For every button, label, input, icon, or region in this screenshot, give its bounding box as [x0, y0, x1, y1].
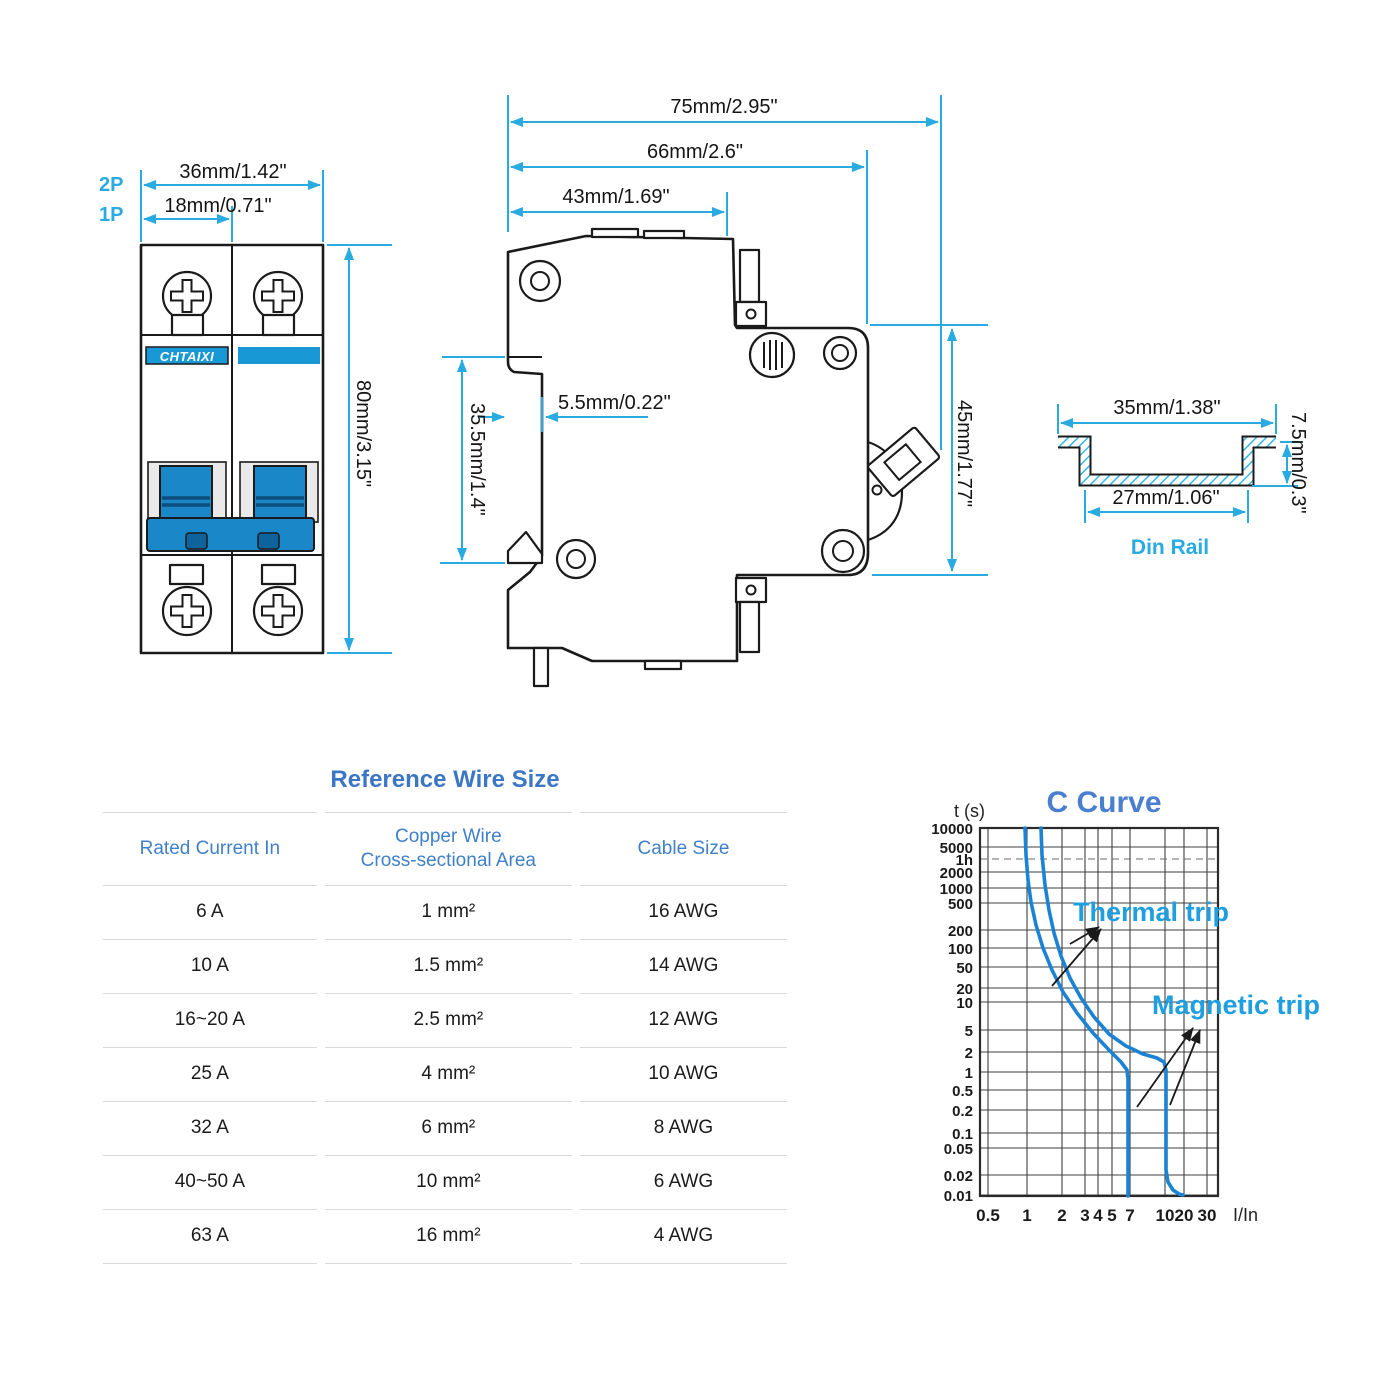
x-tick-label: 20	[1175, 1206, 1194, 1225]
y-tick-label: 10	[956, 995, 973, 1012]
x-tick-label: 4	[1093, 1206, 1103, 1225]
x-tick-label: 2	[1057, 1206, 1066, 1225]
dim-recess-height: 35.5mm/1.4"	[466, 403, 488, 516]
y-tick-label: 200	[948, 923, 973, 940]
table-row: 63 A16 mm²4 AWG	[103, 1209, 787, 1264]
x-tick-label: 30	[1198, 1206, 1217, 1225]
y-tick-label: 2000	[940, 865, 973, 882]
x-tick-label: 3	[1080, 1206, 1089, 1225]
screw-phillips-icon	[254, 272, 302, 320]
dim-width-2p: 36mm/1.42"	[179, 161, 286, 183]
leader-arrow	[1170, 1030, 1200, 1105]
din-clip	[508, 532, 542, 563]
table-header-row: Rated Current In Copper Wire Cross-secti…	[103, 812, 787, 886]
technical-drawings: CHTAIXI	[0, 0, 1400, 760]
y-tick-label: 50	[956, 960, 973, 977]
x-tick-label: 0.5	[976, 1206, 1000, 1225]
y-tick-label: 5	[965, 1023, 973, 1040]
table-row: 25 A4 mm²10 AWG	[103, 1047, 787, 1101]
x-tick-label: 10	[1156, 1206, 1175, 1225]
trip-curve-chart: 0.51234571020301000050001h20001000500200…	[880, 775, 1390, 1255]
y-tick-label: 0.05	[944, 1141, 973, 1158]
annotation-magnetic-trip: Magnetic trip	[1152, 990, 1320, 1020]
rivet-icon	[822, 530, 864, 572]
dim-recess-depth: 5.5mm/0.22"	[558, 392, 671, 414]
pole-label-2p: 2P	[99, 174, 123, 196]
y-tick-label: 0.02	[944, 1168, 973, 1185]
col-header-cable-size: Cable Size	[580, 812, 787, 886]
toggle-tie-bar	[147, 518, 314, 551]
trip-curve	[1025, 828, 1128, 1196]
dim-rail-inner: 27mm/1.06"	[1112, 487, 1219, 509]
brand-strip-blank	[238, 347, 320, 364]
screw-phillips-icon	[254, 587, 302, 635]
y-tick-label: 1	[965, 1065, 973, 1082]
y-tick-label: 0.2	[952, 1103, 973, 1120]
dim-height: 80mm/3.15"	[352, 380, 374, 487]
annotation-thermal-trip: Thermal trip	[1073, 897, 1229, 927]
col-header-cross-section: Copper Wire Cross-sectional Area	[325, 812, 572, 886]
x-axis-label: I/In	[1233, 1205, 1258, 1225]
chart-plot-area: 0.51234571020301000050001h20001000500200…	[931, 821, 1218, 1225]
table-row: 6 A1 mm²16 AWG	[103, 886, 787, 939]
wire-size-table: Reference Wire Size Rated Current In Cop…	[95, 766, 795, 1264]
table-row: 16~20 A2.5 mm²12 AWG	[103, 993, 787, 1047]
y-tick-label: 0.5	[952, 1083, 973, 1100]
rivet-icon	[520, 261, 560, 301]
dim-rail-depth: 7.5mm/0.3"	[1287, 412, 1309, 514]
y-tick-label: 500	[948, 896, 973, 913]
dim-rail-outer: 35mm/1.38"	[1113, 397, 1220, 419]
dim-body-height: 45mm/1.77"	[953, 400, 975, 507]
table-row: 10 A1.5 mm²14 AWG	[103, 939, 787, 993]
y-tick-label: 10000	[931, 821, 973, 838]
breaker-side-view: 75mm/2.95" 66mm/2.6" 43mm/1.69" 5.5mm/0.…	[440, 95, 988, 686]
table-title: Reference Wire Size	[95, 766, 795, 794]
rivet-icon	[557, 540, 595, 578]
slotted-screw-icon	[750, 333, 794, 377]
spec-sheet: CHTAIXI	[0, 0, 1400, 1400]
dim-total-width: 75mm/2.95"	[670, 96, 777, 118]
brand-logo: CHTAIXI	[160, 349, 215, 364]
col-header-rated-current: Rated Current In	[103, 812, 317, 886]
din-rail-label: Din Rail	[1131, 536, 1209, 559]
y-tick-label: 100	[948, 941, 973, 958]
x-tick-label: 5	[1107, 1206, 1116, 1225]
breaker-front-view: CHTAIXI	[99, 161, 392, 653]
y-axis-label: t (s)	[954, 801, 985, 821]
screw-phillips-icon	[163, 272, 211, 320]
y-tick-label: 0.01	[944, 1188, 973, 1205]
pole-label-1p: 1P	[99, 204, 123, 226]
x-tick-label: 7	[1125, 1206, 1134, 1225]
table-row: 32 A6 mm²8 AWG	[103, 1101, 787, 1155]
din-rail-profile: 35mm/1.38" 27mm/1.06" 7.5mm/0.3" Din Rai…	[1058, 397, 1309, 559]
table-row: 40~50 A10 mm²6 AWG	[103, 1155, 787, 1209]
dim-front-width: 43mm/1.69"	[562, 186, 669, 208]
dim-width-1p: 18mm/0.71"	[164, 195, 271, 217]
y-tick-label: 2	[965, 1045, 973, 1062]
chart-title: C Curve	[1046, 786, 1161, 819]
rivet-icon	[824, 337, 856, 369]
dim-body-width: 66mm/2.6"	[647, 141, 743, 163]
toggle-handle	[160, 466, 212, 518]
x-tick-label: 1	[1022, 1206, 1031, 1225]
side-outline	[508, 236, 868, 661]
screw-phillips-icon	[163, 587, 211, 635]
leader-arrow	[1052, 929, 1101, 986]
toggle-handle	[254, 466, 306, 518]
